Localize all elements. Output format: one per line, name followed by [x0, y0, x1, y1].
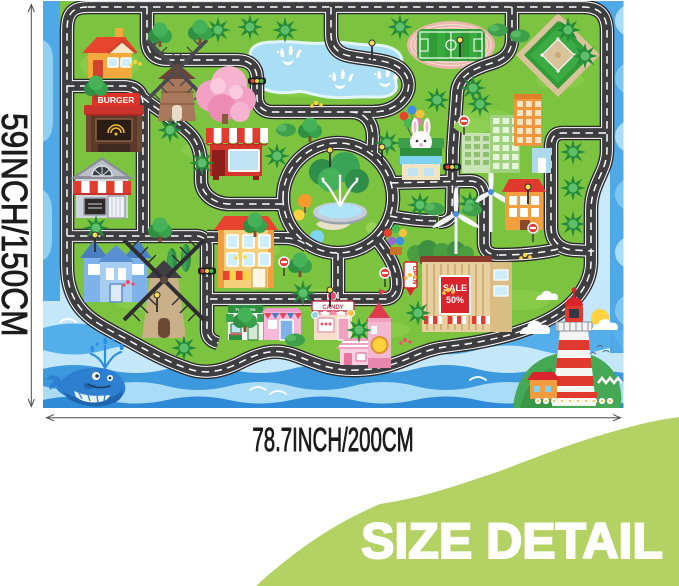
svg-text:78.7INCH/200CM: 78.7INCH/200CM [252, 421, 413, 458]
svg-text:59INCH/150CM: 59INCH/150CM [0, 113, 34, 336]
svg-text:50%: 50% [446, 295, 464, 305]
svg-text:BURGER: BURGER [98, 95, 135, 105]
svg-text:CANDY: CANDY [322, 305, 343, 311]
svg-text:SIZE DETAIL: SIZE DETAIL [361, 513, 663, 569]
